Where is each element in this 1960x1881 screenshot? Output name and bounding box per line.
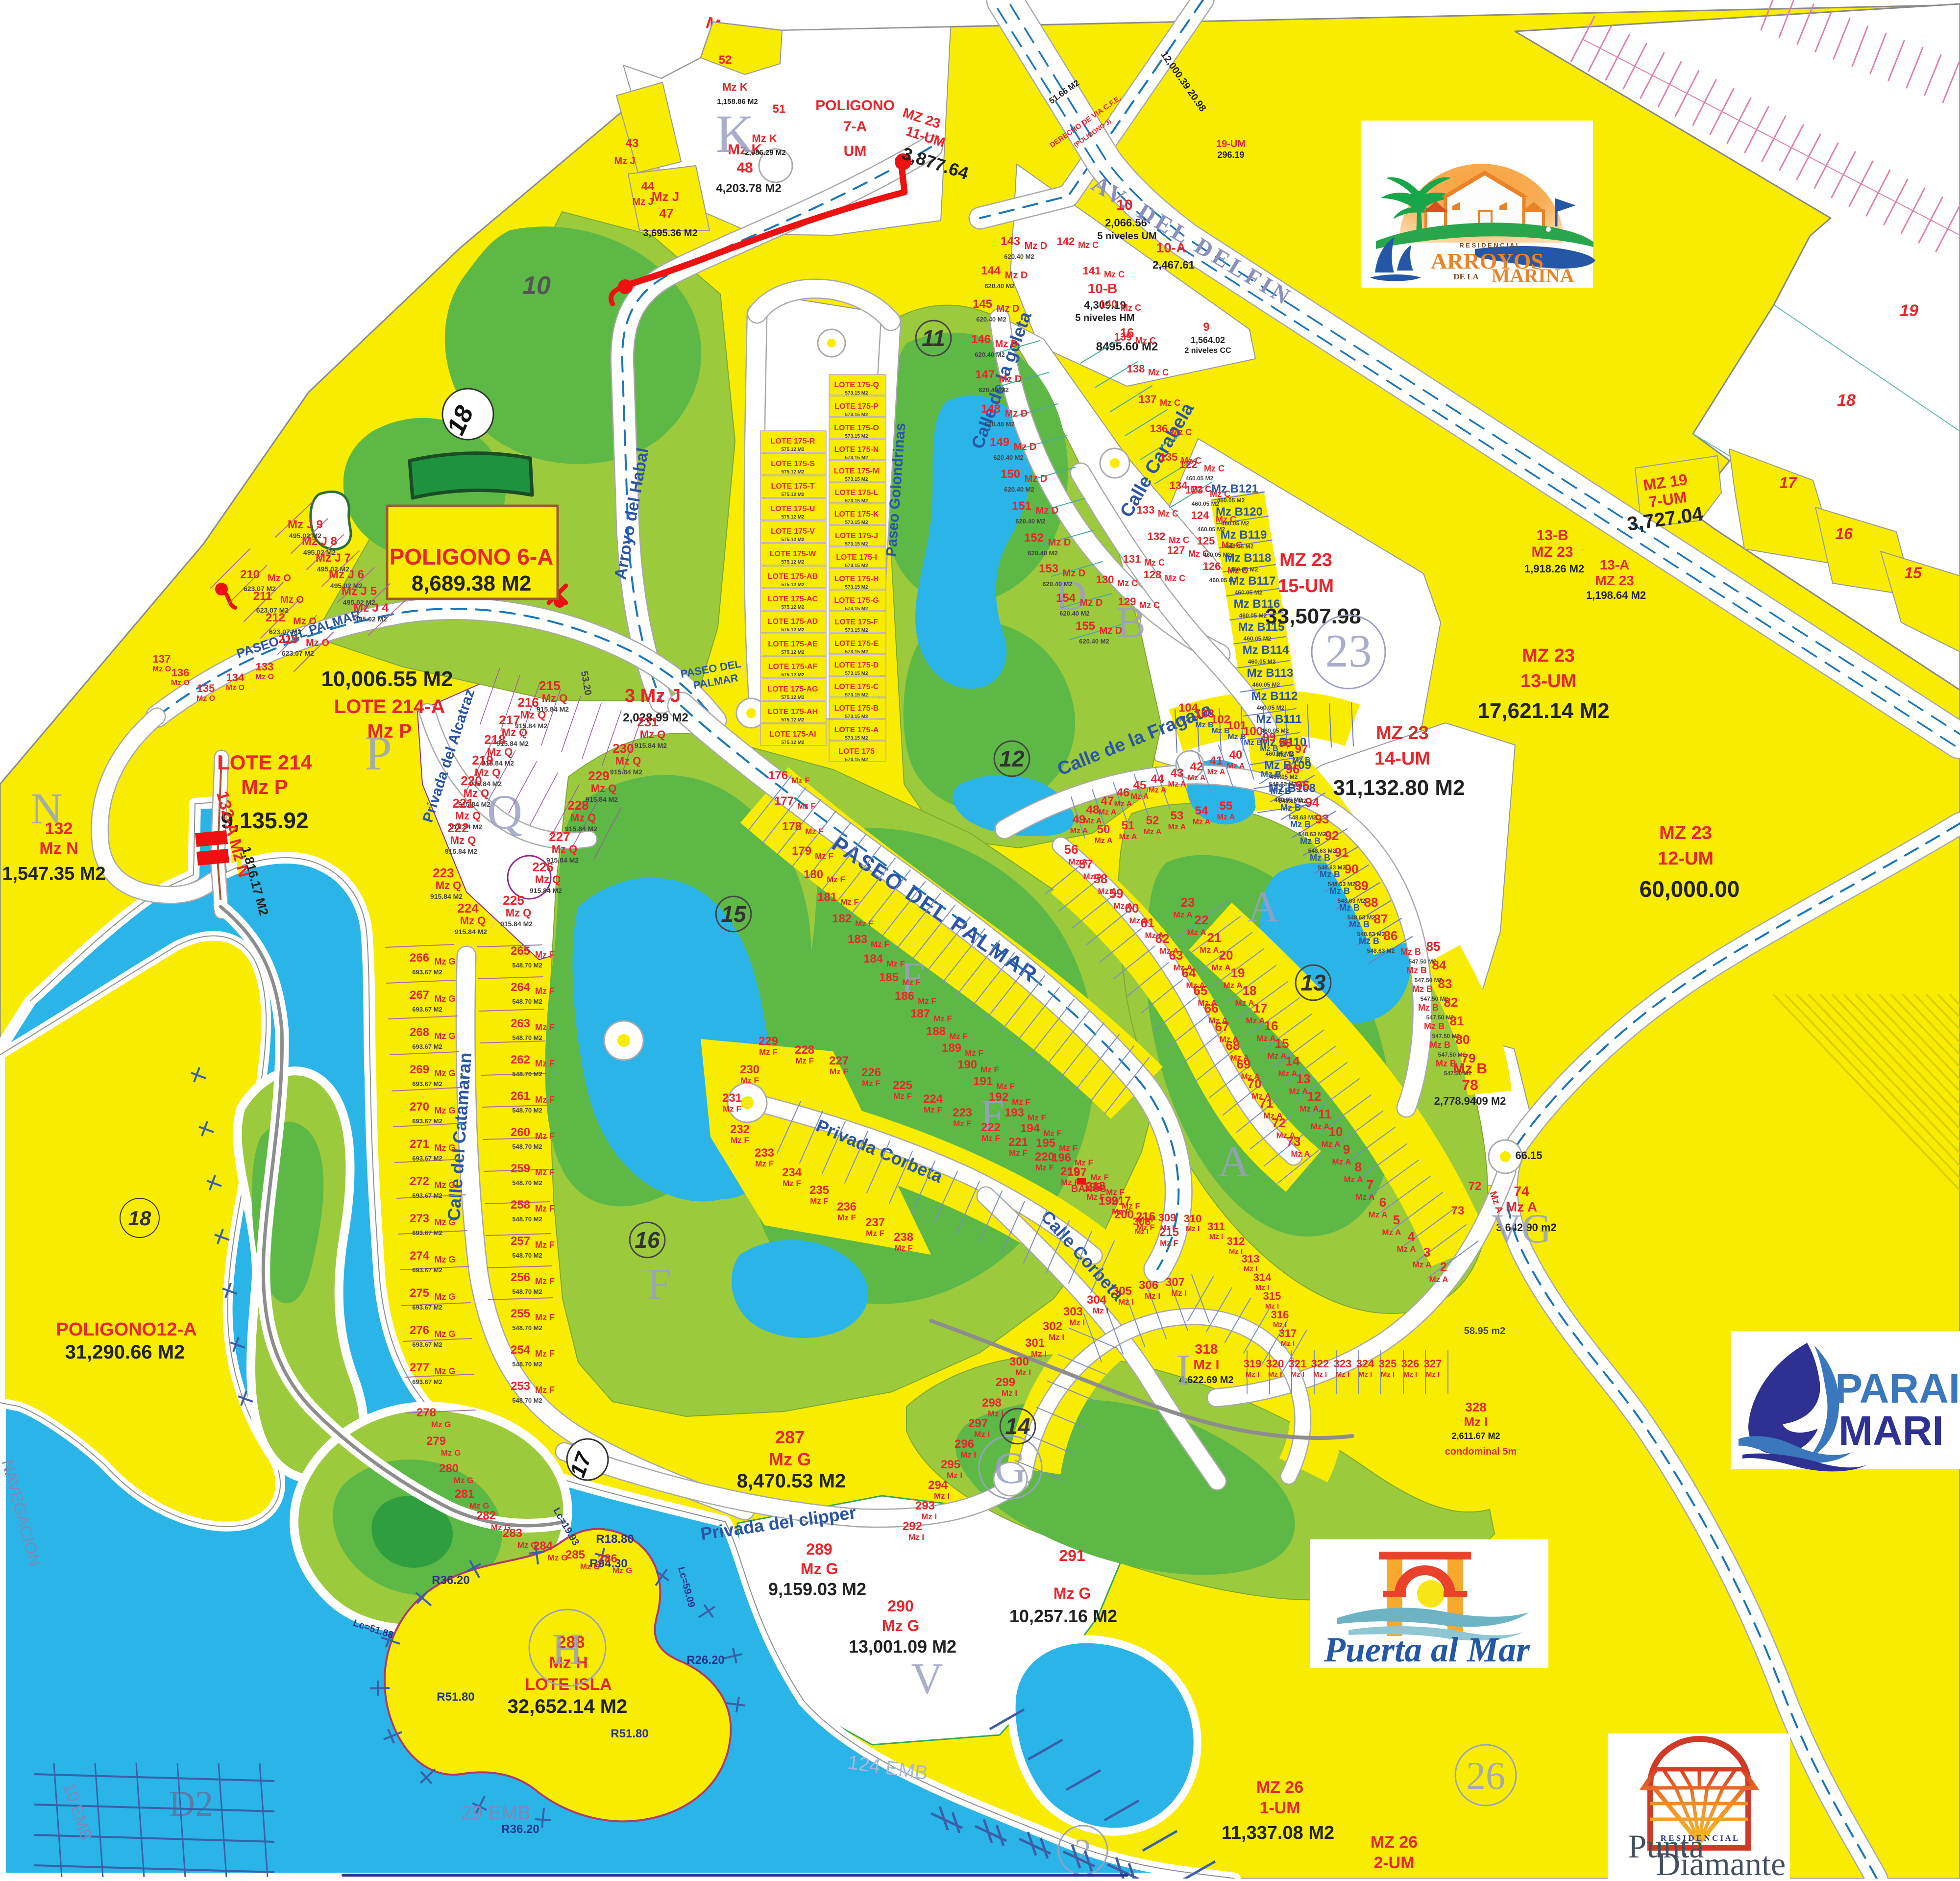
svg-text:Mz F: Mz F xyxy=(827,875,845,884)
svg-text:73: 73 xyxy=(1451,1204,1465,1217)
svg-text:693.67 M2: 693.67 M2 xyxy=(412,1378,442,1386)
svg-text:19: 19 xyxy=(1900,301,1918,320)
svg-text:575.12 M2: 575.12 M2 xyxy=(781,470,805,475)
svg-text:Mz K: Mz K xyxy=(722,81,747,93)
svg-text:Mz B111: Mz B111 xyxy=(1256,713,1301,726)
svg-text:Mz F: Mz F xyxy=(731,1136,749,1145)
svg-text:305: 305 xyxy=(1112,1285,1132,1298)
svg-text:Mz F: Mz F xyxy=(783,1179,801,1188)
svg-text:145: 145 xyxy=(973,297,992,311)
svg-text:548.70 M2: 548.70 M2 xyxy=(512,1288,542,1295)
svg-text:154: 154 xyxy=(1056,592,1076,605)
svg-text:49: 49 xyxy=(1073,813,1086,826)
svg-text:87: 87 xyxy=(1374,912,1388,926)
svg-text:Mz F: Mz F xyxy=(996,1082,1015,1091)
svg-text:LOTE ISLA: LOTE ISLA xyxy=(525,1675,612,1694)
svg-text:225: 225 xyxy=(503,893,524,908)
svg-text:Mz B: Mz B xyxy=(1276,750,1294,759)
svg-text:287: 287 xyxy=(775,1427,805,1447)
svg-text:93: 93 xyxy=(1315,812,1329,826)
svg-text:LOTE 175-J: LOTE 175-J xyxy=(835,532,878,540)
svg-text:18: 18 xyxy=(1243,983,1257,998)
svg-text:280: 280 xyxy=(439,1462,459,1475)
svg-text:Mz I: Mz I xyxy=(1015,1368,1031,1377)
svg-text:269: 269 xyxy=(410,1063,429,1076)
svg-text:Diamante: Diamante xyxy=(1656,1845,1786,1879)
svg-text:229: 229 xyxy=(588,768,609,783)
svg-text:265: 265 xyxy=(511,944,530,958)
svg-text:5: 5 xyxy=(1393,1213,1400,1227)
svg-text:620.40 M2: 620.40 M2 xyxy=(1059,610,1089,617)
svg-text:573.15 M2: 573.15 M2 xyxy=(845,455,868,461)
svg-text:LOTE 175-M: LOTE 175-M xyxy=(834,467,879,475)
svg-text:230: 230 xyxy=(740,1063,759,1076)
svg-text:16: 16 xyxy=(1264,1018,1278,1033)
svg-text:135: 135 xyxy=(1160,451,1178,463)
svg-text:17,621.14 M2: 17,621.14 M2 xyxy=(1477,699,1609,723)
svg-text:Mz K: Mz K xyxy=(752,132,777,145)
svg-text:220: 220 xyxy=(1035,1150,1054,1163)
svg-text:460.05 M2: 460.05 M2 xyxy=(1226,543,1254,550)
svg-text:253: 253 xyxy=(511,1380,530,1393)
svg-text:155: 155 xyxy=(1076,619,1095,633)
svg-text:188: 188 xyxy=(926,1025,946,1038)
svg-text:16: 16 xyxy=(1835,525,1853,543)
svg-text:620.40 M2: 620.40 M2 xyxy=(1042,580,1072,588)
svg-text:693.67 M2: 693.67 M2 xyxy=(412,1117,442,1125)
svg-text:Mz Q: Mz Q xyxy=(640,728,666,741)
svg-text:3 Mz J: 3 Mz J xyxy=(625,686,681,706)
svg-text:326: 326 xyxy=(1401,1358,1420,1370)
svg-text:Mz F: Mz F xyxy=(535,1385,555,1395)
svg-text:Mz I: Mz I xyxy=(1358,1370,1372,1379)
svg-text:220: 220 xyxy=(461,773,482,788)
svg-text:460.05 M2: 460.05 M2 xyxy=(1257,704,1285,711)
svg-text:71: 71 xyxy=(1259,1096,1274,1111)
svg-text:234: 234 xyxy=(782,1166,802,1179)
svg-text:Mz J 4: Mz J 4 xyxy=(353,601,389,615)
svg-text:BAÑOS: BAÑOS xyxy=(1071,1183,1106,1194)
svg-text:Mz A: Mz A xyxy=(1227,762,1245,770)
svg-text:620.40 M2: 620.40 M2 xyxy=(993,454,1023,461)
svg-text:915.84 M2: 915.84 M2 xyxy=(530,887,562,894)
svg-text:15: 15 xyxy=(1275,1036,1289,1051)
svg-text:Mz B: Mz B xyxy=(1261,769,1281,779)
svg-text:43: 43 xyxy=(1171,767,1184,780)
svg-text:23: 23 xyxy=(1325,625,1372,677)
svg-text:233: 233 xyxy=(755,1146,774,1160)
svg-text:13-A: 13-A xyxy=(1600,557,1630,572)
svg-text:319: 319 xyxy=(1244,1358,1262,1370)
svg-text:Mz A: Mz A xyxy=(1200,945,1219,955)
svg-text:620.40 M2: 620.40 M2 xyxy=(976,316,1006,323)
svg-text:693.67 M2: 693.67 M2 xyxy=(412,1192,442,1199)
svg-text:575.12 M2: 575.12 M2 xyxy=(781,515,805,520)
svg-text:LOTE 175-U: LOTE 175-U xyxy=(771,505,815,513)
svg-text:137: 137 xyxy=(1139,393,1157,405)
svg-text:144: 144 xyxy=(981,264,1001,277)
svg-text:Mz G: Mz G xyxy=(435,994,456,1004)
svg-text:72: 72 xyxy=(1272,1115,1286,1130)
svg-text:41: 41 xyxy=(1210,754,1223,767)
svg-text:620.40 M2: 620.40 M2 xyxy=(1015,518,1045,525)
svg-text:217: 217 xyxy=(499,713,520,727)
svg-text:134: 134 xyxy=(226,671,245,684)
svg-text:60: 60 xyxy=(1125,901,1139,916)
svg-text:8,470.53 M2: 8,470.53 M2 xyxy=(737,1470,846,1492)
svg-text:LOTE 175-R: LOTE 175-R xyxy=(771,437,815,445)
svg-text:Mz D: Mz D xyxy=(1063,568,1086,579)
svg-text:12-UM: 12-UM xyxy=(1658,848,1714,869)
svg-text:258: 258 xyxy=(511,1198,530,1212)
svg-text:Mz O: Mz O xyxy=(268,573,291,584)
svg-text:460.05 M2: 460.05 M2 xyxy=(1222,520,1249,527)
svg-text:60,000.00: 60,000.00 xyxy=(1640,876,1740,902)
svg-text:Mz C: Mz C xyxy=(1160,398,1180,408)
svg-text:64: 64 xyxy=(1182,965,1196,980)
svg-text:Mz B: Mz B xyxy=(1310,853,1330,863)
svg-text:915.84 M2: 915.84 M2 xyxy=(546,856,579,864)
svg-text:254: 254 xyxy=(511,1343,531,1357)
svg-text:Mz F: Mz F xyxy=(535,950,555,960)
svg-text:Mz C: Mz C xyxy=(1139,600,1160,610)
svg-text:Mz F: Mz F xyxy=(535,1312,555,1322)
svg-text:57: 57 xyxy=(1079,857,1093,871)
svg-text:Mz P: Mz P xyxy=(241,775,288,798)
svg-text:Mz C: Mz C xyxy=(1078,240,1099,250)
svg-text:59: 59 xyxy=(1109,886,1124,901)
svg-text:Mz A: Mz A xyxy=(1396,1244,1416,1254)
svg-text:Mz G: Mz G xyxy=(801,1560,838,1578)
svg-text:Mz G: Mz G xyxy=(435,1329,456,1339)
svg-text:Mz F: Mz F xyxy=(740,1076,759,1085)
svg-text:LOTE 175-F: LOTE 175-F xyxy=(835,618,879,626)
svg-text:VG: VG xyxy=(1492,1206,1552,1252)
svg-text:Mz I: Mz I xyxy=(1291,1370,1304,1379)
svg-text:44: 44 xyxy=(1151,772,1164,786)
svg-text:320: 320 xyxy=(1266,1358,1284,1370)
svg-text:Mz D: Mz D xyxy=(1048,537,1071,548)
svg-text:condominal 5m: condominal 5m xyxy=(1445,1446,1517,1457)
svg-text:Mz F: Mz F xyxy=(871,940,889,949)
svg-text:Mz I: Mz I xyxy=(1031,1349,1047,1359)
svg-text:182: 182 xyxy=(832,912,852,925)
svg-text:48: 48 xyxy=(1086,803,1100,817)
svg-text:126: 126 xyxy=(1203,560,1221,572)
svg-text:Mz B118: Mz B118 xyxy=(1225,551,1272,565)
svg-text:78: 78 xyxy=(1462,1077,1478,1093)
svg-text:Mz I: Mz I xyxy=(1381,1370,1395,1379)
svg-text:31,290.66 M2: 31,290.66 M2 xyxy=(65,1341,185,1363)
svg-text:A: A xyxy=(1218,1138,1250,1186)
svg-text:POLIGONO: POLIGONO xyxy=(815,98,895,114)
svg-text:264: 264 xyxy=(511,981,531,994)
svg-text:573.15 M2: 573.15 M2 xyxy=(845,498,868,504)
svg-text:Mz J 6: Mz J 6 xyxy=(329,568,364,581)
svg-text:152: 152 xyxy=(1024,531,1044,544)
svg-text:186: 186 xyxy=(895,990,914,1003)
svg-text:327: 327 xyxy=(1424,1358,1442,1370)
svg-text:195: 195 xyxy=(1036,1137,1055,1150)
svg-text:575.12 M2: 575.12 M2 xyxy=(781,492,805,497)
svg-text:Mz D: Mz D xyxy=(1005,408,1028,419)
svg-text:573.15 M2: 573.15 M2 xyxy=(845,693,868,698)
svg-text:267: 267 xyxy=(410,989,429,1002)
svg-text:693.67 M2: 693.67 M2 xyxy=(412,1304,442,1311)
svg-text:MARINA: MARINA xyxy=(1492,265,1574,287)
svg-text:Mz A: Mz A xyxy=(1355,1192,1374,1202)
svg-text:Mz I: Mz I xyxy=(1069,1318,1085,1327)
svg-text:70: 70 xyxy=(1248,1076,1262,1091)
svg-text:LOTE 175-E: LOTE 175-E xyxy=(834,640,879,648)
svg-text:LOTE 175: LOTE 175 xyxy=(838,747,875,756)
svg-text:211: 211 xyxy=(253,590,272,603)
svg-text:460.05 M2: 460.05 M2 xyxy=(1244,635,1272,642)
svg-text:Mz B: Mz B xyxy=(1244,739,1262,747)
svg-text:Mz G: Mz G xyxy=(435,1217,456,1227)
svg-text:2,467.61: 2,467.61 xyxy=(1152,259,1195,271)
svg-text:693.67 M2: 693.67 M2 xyxy=(412,1080,442,1088)
svg-text:12: 12 xyxy=(999,746,1025,771)
svg-text:325: 325 xyxy=(1379,1358,1397,1370)
svg-text:P: P xyxy=(365,726,392,780)
svg-text:LOTE 175-N: LOTE 175-N xyxy=(834,445,879,454)
svg-text:Mz B: Mz B xyxy=(1329,886,1350,896)
svg-text:MZ 23: MZ 23 xyxy=(1659,823,1712,843)
svg-text:Mz C: Mz C xyxy=(1204,464,1225,473)
svg-text:262: 262 xyxy=(511,1053,530,1066)
svg-text:81: 81 xyxy=(1450,1014,1464,1028)
svg-text:Mz Q: Mz Q xyxy=(436,879,462,891)
svg-text:51: 51 xyxy=(773,102,786,116)
svg-text:Mz I: Mz I xyxy=(1049,1333,1064,1342)
svg-text:14: 14 xyxy=(1005,1413,1030,1439)
svg-text:693.67 M2: 693.67 M2 xyxy=(412,968,442,976)
svg-text:83: 83 xyxy=(1438,976,1452,991)
svg-text:Mz O: Mz O xyxy=(152,665,171,673)
svg-text:Mz I: Mz I xyxy=(1313,1370,1327,1379)
svg-text:61: 61 xyxy=(1141,916,1155,930)
svg-text:Mz F: Mz F xyxy=(840,897,859,907)
svg-text:Mz F: Mz F xyxy=(918,996,936,1006)
svg-text:Mz F: Mz F xyxy=(535,1022,555,1032)
svg-text:8,689.38 M2: 8,689.38 M2 xyxy=(412,571,532,595)
svg-text:141: 141 xyxy=(1083,265,1101,277)
svg-text:Mz D: Mz D xyxy=(1100,625,1123,636)
svg-text:915.84 M2: 915.84 M2 xyxy=(430,892,463,900)
svg-text:LOTE 175-W: LOTE 175-W xyxy=(770,550,816,558)
svg-text:Mz Q: Mz Q xyxy=(506,907,532,919)
svg-text:6: 6 xyxy=(1379,1195,1386,1210)
svg-text:575.12 M2: 575.12 M2 xyxy=(781,605,805,610)
svg-text:89: 89 xyxy=(1354,878,1369,893)
svg-text:13-UM: 13-UM xyxy=(1520,671,1576,692)
svg-text:Mz G: Mz G xyxy=(435,1255,456,1264)
svg-text:297: 297 xyxy=(968,1417,988,1430)
svg-text:15-UM: 15-UM xyxy=(1278,576,1334,596)
svg-text:Mz A: Mz A xyxy=(1267,1051,1286,1061)
svg-text:Mz C: Mz C xyxy=(1158,509,1178,519)
svg-text:148: 148 xyxy=(981,402,1001,416)
svg-text:53: 53 xyxy=(1171,809,1184,822)
svg-text:146: 146 xyxy=(971,333,991,346)
svg-text:91: 91 xyxy=(1335,845,1349,860)
svg-text:693.67 M2: 693.67 M2 xyxy=(412,1341,442,1348)
svg-text:187: 187 xyxy=(910,1007,930,1020)
svg-text:MZ 23: MZ 23 xyxy=(1376,723,1429,743)
svg-text:Mz O: Mz O xyxy=(171,679,190,687)
svg-text:LOTE 175-H: LOTE 175-H xyxy=(834,575,879,583)
svg-text:548.70 M2: 548.70 M2 xyxy=(512,1070,542,1078)
svg-text:Mz A: Mz A xyxy=(1168,780,1186,789)
svg-text:Mz A: Mz A xyxy=(1344,1175,1363,1184)
svg-text:Mz G: Mz G xyxy=(435,1143,456,1153)
svg-text:Mz I: Mz I xyxy=(1145,1291,1160,1301)
svg-text:11,337.08 M2: 11,337.08 M2 xyxy=(1222,1823,1334,1843)
svg-text:Mz G: Mz G xyxy=(435,957,456,966)
svg-text:228: 228 xyxy=(795,1043,814,1057)
svg-text:11: 11 xyxy=(1318,1107,1332,1121)
svg-text:50: 50 xyxy=(1097,823,1110,836)
svg-text:Mz A: Mz A xyxy=(1246,1016,1265,1025)
svg-text:Mz B: Mz B xyxy=(1320,869,1340,879)
svg-text:620.40 M2: 620.40 M2 xyxy=(1004,486,1034,493)
svg-text:460.05 M2: 460.05 M2 xyxy=(1252,681,1280,688)
svg-text:Mz F: Mz F xyxy=(949,1032,968,1041)
svg-text:3: 3 xyxy=(1423,1245,1430,1260)
svg-text:128: 128 xyxy=(1144,569,1162,581)
svg-text:573.15 M2: 573.15 M2 xyxy=(845,391,868,396)
svg-text:321: 321 xyxy=(1289,1358,1307,1370)
svg-text:Mz O: Mz O xyxy=(196,694,215,703)
svg-text:176: 176 xyxy=(768,769,788,782)
svg-text:281: 281 xyxy=(455,1487,474,1501)
svg-text:266: 266 xyxy=(410,951,429,965)
svg-text:Mz Q: Mz Q xyxy=(535,873,561,886)
svg-text:Mz B: Mz B xyxy=(1424,1021,1445,1031)
svg-text:88: 88 xyxy=(1364,895,1378,910)
svg-text:95: 95 xyxy=(1296,778,1310,793)
svg-text:Mz A: Mz A xyxy=(1332,1157,1351,1166)
svg-text:575.12 M2: 575.12 M2 xyxy=(781,740,805,745)
svg-text:693.67 M2: 693.67 M2 xyxy=(412,1043,442,1050)
svg-text:224: 224 xyxy=(923,1092,943,1106)
svg-text:317: 317 xyxy=(1279,1327,1297,1339)
svg-text:Mz I: Mz I xyxy=(1093,1306,1108,1315)
svg-text:LOTE 175-AE: LOTE 175-AE xyxy=(768,640,818,648)
svg-text:222: 222 xyxy=(447,820,468,835)
svg-text:Mz C: Mz C xyxy=(1121,303,1141,313)
svg-text:Mz F: Mz F xyxy=(535,1131,555,1141)
svg-text:15: 15 xyxy=(721,901,747,927)
svg-text:149: 149 xyxy=(990,436,1009,449)
svg-text:Mz C: Mz C xyxy=(1148,368,1169,377)
svg-text:MARI: MARI xyxy=(1838,1408,1944,1454)
svg-text:138: 138 xyxy=(1127,363,1145,375)
svg-text:Mz G: Mz G xyxy=(431,1420,451,1429)
svg-text:12: 12 xyxy=(1307,1089,1322,1104)
svg-text:LOTE 175-I: LOTE 175-I xyxy=(836,553,877,562)
svg-text:85: 85 xyxy=(1426,939,1441,954)
svg-text:255: 255 xyxy=(511,1307,530,1320)
svg-text:Mz I: Mz I xyxy=(1464,1414,1488,1429)
svg-text:32,652.14 M2: 32,652.14 M2 xyxy=(508,1696,628,1717)
svg-text:Mz I: Mz I xyxy=(1403,1370,1417,1379)
svg-text:328: 328 xyxy=(1465,1400,1486,1414)
svg-text:40: 40 xyxy=(1229,748,1243,762)
svg-text:Mz I: Mz I xyxy=(1194,1357,1220,1372)
svg-text:620.40 M2: 620.40 M2 xyxy=(984,421,1014,428)
svg-text:20: 20 xyxy=(1219,948,1233,963)
svg-text:575.12 M2: 575.12 M2 xyxy=(781,695,805,700)
svg-text:Mz B115: Mz B115 xyxy=(1238,620,1285,634)
svg-text:Mz C: Mz C xyxy=(1169,535,1189,545)
svg-text:LOTE 175-C: LOTE 175-C xyxy=(834,683,879,691)
svg-text:UM: UM xyxy=(844,143,867,159)
svg-text:Mz I: Mz I xyxy=(1118,1297,1134,1307)
svg-text:11: 11 xyxy=(922,325,945,351)
svg-text:8: 8 xyxy=(1355,1160,1362,1174)
svg-text:Mz G: Mz G xyxy=(1053,1584,1091,1602)
svg-text:Mz I: Mz I xyxy=(1229,1247,1243,1256)
svg-text:312: 312 xyxy=(1227,1235,1245,1247)
svg-text:R51.80: R51.80 xyxy=(437,1690,474,1704)
svg-text:129: 129 xyxy=(1118,595,1136,608)
svg-text:235: 235 xyxy=(809,1184,829,1197)
svg-text:47: 47 xyxy=(1101,794,1114,808)
svg-text:125: 125 xyxy=(1197,535,1215,547)
svg-text:Mz G: Mz G xyxy=(769,1449,811,1469)
svg-text:Mz O: Mz O xyxy=(226,684,245,692)
svg-text:10: 10 xyxy=(1329,1124,1343,1139)
svg-text:Mz F: Mz F xyxy=(965,1048,983,1058)
svg-text:Mz F: Mz F xyxy=(886,959,905,968)
svg-text:575.12 M2: 575.12 M2 xyxy=(781,650,805,655)
svg-text:Mz F: Mz F xyxy=(723,1104,741,1114)
svg-text:Mz A: Mz A xyxy=(1099,808,1117,817)
svg-text:575.12 M2: 575.12 M2 xyxy=(781,447,805,452)
svg-text:Mz O: Mz O xyxy=(280,594,304,605)
svg-text:2 niveles CC: 2 niveles CC xyxy=(1184,346,1231,355)
svg-text:MZ 26: MZ 26 xyxy=(1371,1833,1418,1852)
svg-text:Mz B114: Mz B114 xyxy=(1243,643,1289,657)
svg-text:268: 268 xyxy=(410,1026,429,1039)
svg-text:LOTE 175-O: LOTE 175-O xyxy=(834,424,879,432)
svg-text:Mz I: Mz I xyxy=(908,1533,924,1542)
svg-text:Mz B: Mz B xyxy=(1349,919,1370,929)
svg-text:Mz D: Mz D xyxy=(1080,597,1103,608)
svg-text:19-UM: 19-UM xyxy=(1216,139,1246,149)
svg-text:127: 127 xyxy=(1167,544,1185,556)
svg-text:Mz C: Mz C xyxy=(1144,558,1165,568)
svg-text:POLIGONO12-A: POLIGONO12-A xyxy=(56,1319,196,1340)
svg-text:Mz I: Mz I xyxy=(974,1430,990,1439)
svg-text:Mz I: Mz I xyxy=(1209,1233,1223,1241)
svg-text:298: 298 xyxy=(982,1396,1002,1410)
svg-text:289: 289 xyxy=(806,1540,832,1558)
svg-text:Mz B113: Mz B113 xyxy=(1247,667,1294,680)
svg-text:22: 22 xyxy=(1195,913,1209,927)
svg-text:14-UM: 14-UM xyxy=(1374,748,1430,769)
svg-text:PARAI: PARAI xyxy=(1835,1365,1960,1411)
svg-text:302: 302 xyxy=(1043,1320,1062,1333)
svg-text:74: 74 xyxy=(1514,1184,1529,1199)
svg-text:573.15 M2: 573.15 M2 xyxy=(845,671,868,676)
svg-text:Mz B: Mz B xyxy=(1260,744,1278,753)
svg-text:Mz F: Mz F xyxy=(759,1047,778,1057)
svg-text:190: 190 xyxy=(957,1058,977,1071)
svg-text:Mz I: Mz I xyxy=(1336,1370,1349,1379)
